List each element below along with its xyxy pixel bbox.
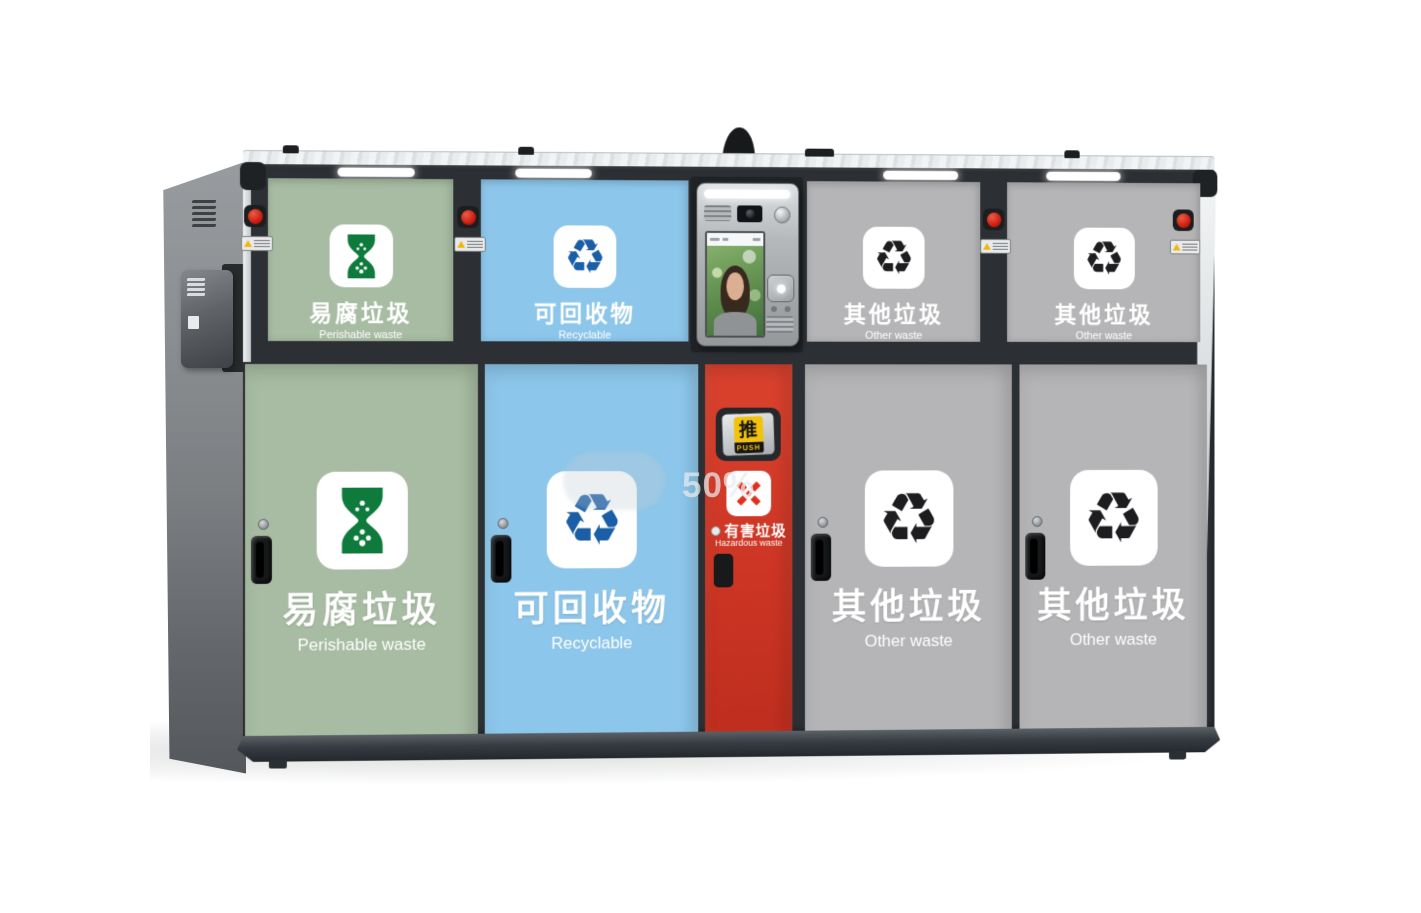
push-flap[interactable]: 推 PUSH: [716, 408, 781, 461]
panel-label-en: Perishable waste: [319, 329, 402, 341]
recycle-icon: ♻: [554, 225, 617, 288]
lock-icon[interactable]: [258, 519, 269, 530]
door-other-2[interactable]: ♻ 其他垃圾 Other waste: [1020, 364, 1207, 742]
door-handle[interactable]: [811, 534, 831, 581]
emergency-button[interactable]: [1173, 209, 1194, 231]
smart-waste-station-photo: 易腐垃圾 Perishable waste ♻ 可回收物 Recyclable …: [0, 0, 1421, 913]
waste-sorting-cabinet: 易腐垃圾 Perishable waste ♻ 可回收物 Recyclable …: [243, 150, 1214, 766]
kiosk-screen[interactable]: [705, 231, 765, 338]
lock-icon[interactable]: [818, 517, 829, 528]
info-icon: [711, 526, 721, 536]
door-handle[interactable]: [1025, 533, 1045, 580]
door-other-1[interactable]: ♻ 其他垃圾 Other waste: [805, 364, 1012, 744]
warning-sticker: [241, 236, 273, 251]
screen-status-bar: [707, 233, 763, 246]
door-recyclable[interactable]: ♻ 可回收物 Recyclable: [485, 364, 698, 747]
side-vent: [192, 224, 217, 227]
other-waste-icon: ♻: [864, 470, 953, 567]
door-perishable[interactable]: 易腐垃圾 Perishable waste: [245, 364, 478, 750]
panel-label-en: Other waste: [1076, 330, 1132, 342]
screen-photo-person: [707, 246, 763, 336]
door-label-en: Hazardous waste: [705, 538, 792, 548]
left-edge-trim: [243, 166, 251, 362]
top-panel-perishable[interactable]: 易腐垃圾 Perishable waste: [268, 178, 453, 341]
base-foot: [269, 760, 287, 769]
side-vent: [192, 206, 217, 209]
panel-label-zh: 易腐垃圾: [309, 294, 412, 328]
panel-label-zh: 可回收物: [534, 295, 636, 329]
control-box-vent: [187, 293, 206, 296]
led-light-bar: [338, 168, 415, 177]
proximity-sensor: [774, 207, 790, 224]
door-label-en: Other waste: [865, 631, 953, 651]
cabinet-front: 易腐垃圾 Perishable waste ♻ 可回收物 Recyclable …: [243, 164, 1214, 740]
kiosk-light-bar: [704, 189, 790, 198]
side-vent: [192, 200, 217, 203]
door-label-en: Other waste: [1070, 630, 1157, 650]
hourglass-icon: [329, 224, 392, 287]
led-light-bar: [883, 171, 958, 180]
door-label-zh: 其他垃圾: [832, 578, 986, 630]
door-handle[interactable]: [491, 535, 512, 583]
top-panel-other-1[interactable]: ♻ 其他垃圾 Other waste: [807, 181, 980, 342]
door-label-en: Perishable waste: [298, 635, 426, 656]
door-label-zh: 可回收物: [513, 580, 670, 632]
roof-bolt: [518, 147, 534, 155]
top-panel-other-2[interactable]: ♻ 其他垃圾 Other waste: [1007, 182, 1200, 342]
emergency-button[interactable]: [457, 206, 479, 228]
indicator-dot: [785, 306, 791, 312]
side-control-box[interactable]: [181, 270, 233, 368]
camera-icon: [737, 205, 762, 222]
control-box-vent: [187, 288, 206, 291]
push-sticker: 推 PUSH: [733, 416, 763, 454]
push-label-en: PUSH: [734, 441, 763, 453]
control-box-vent: [187, 278, 206, 281]
lock-icon[interactable]: [498, 518, 509, 529]
warning-sticker: [454, 237, 486, 252]
emergency-button[interactable]: [244, 205, 266, 227]
warning-sticker: [980, 239, 1011, 254]
qr-scanner[interactable]: [767, 275, 794, 303]
panel-label-en: Recyclable: [559, 329, 612, 341]
roof-clamp: [805, 149, 834, 157]
led-light-bar: [515, 169, 592, 178]
control-box-label: [188, 316, 199, 329]
push-label-zh: 推: [733, 416, 763, 443]
door-handle[interactable]: [714, 554, 733, 588]
side-vent: [192, 212, 217, 215]
panel-label-zh: 其他垃圾: [844, 295, 944, 329]
face-recognition-kiosk[interactable]: [696, 182, 799, 346]
door-hazardous[interactable]: 推 PUSH 有害垃圾: [705, 364, 792, 745]
other-waste-icon: ♻: [863, 227, 925, 289]
watermark-blob: [563, 452, 665, 510]
panel-label-en: Other waste: [865, 330, 922, 342]
indicator-dot: [771, 306, 777, 312]
led-light-bar: [1046, 172, 1120, 181]
door-label-zh: 易腐垃圾: [282, 581, 441, 634]
other-waste-icon: ♻: [1070, 470, 1158, 566]
emergency-button[interactable]: [983, 209, 1004, 231]
base-foot: [1169, 750, 1186, 759]
corner-guard: [240, 162, 266, 190]
warning-sticker: [1170, 240, 1200, 255]
speaker-grille: [704, 205, 731, 221]
panel-label-zh: 其他垃圾: [1054, 296, 1153, 329]
watermark-50: 50%: [682, 466, 755, 506]
door-label-zh: 其他垃圾: [1037, 577, 1189, 629]
side-vent: [192, 218, 217, 221]
roof-bolt: [283, 145, 299, 153]
control-box-vent: [187, 283, 206, 286]
top-panel-recyclable[interactable]: ♻ 可回收物 Recyclable: [481, 179, 689, 341]
push-flap-plate: 推 PUSH: [722, 413, 775, 456]
door-handle[interactable]: [251, 536, 272, 584]
lock-icon[interactable]: [1032, 516, 1043, 527]
other-waste-icon: ♻: [1073, 228, 1134, 290]
cabinet-left-side: [158, 158, 246, 776]
door-label-en: Recyclable: [551, 633, 632, 653]
roof-bolt: [1064, 150, 1079, 158]
hourglass-icon: [316, 472, 407, 570]
speaker-grille: [766, 316, 793, 333]
